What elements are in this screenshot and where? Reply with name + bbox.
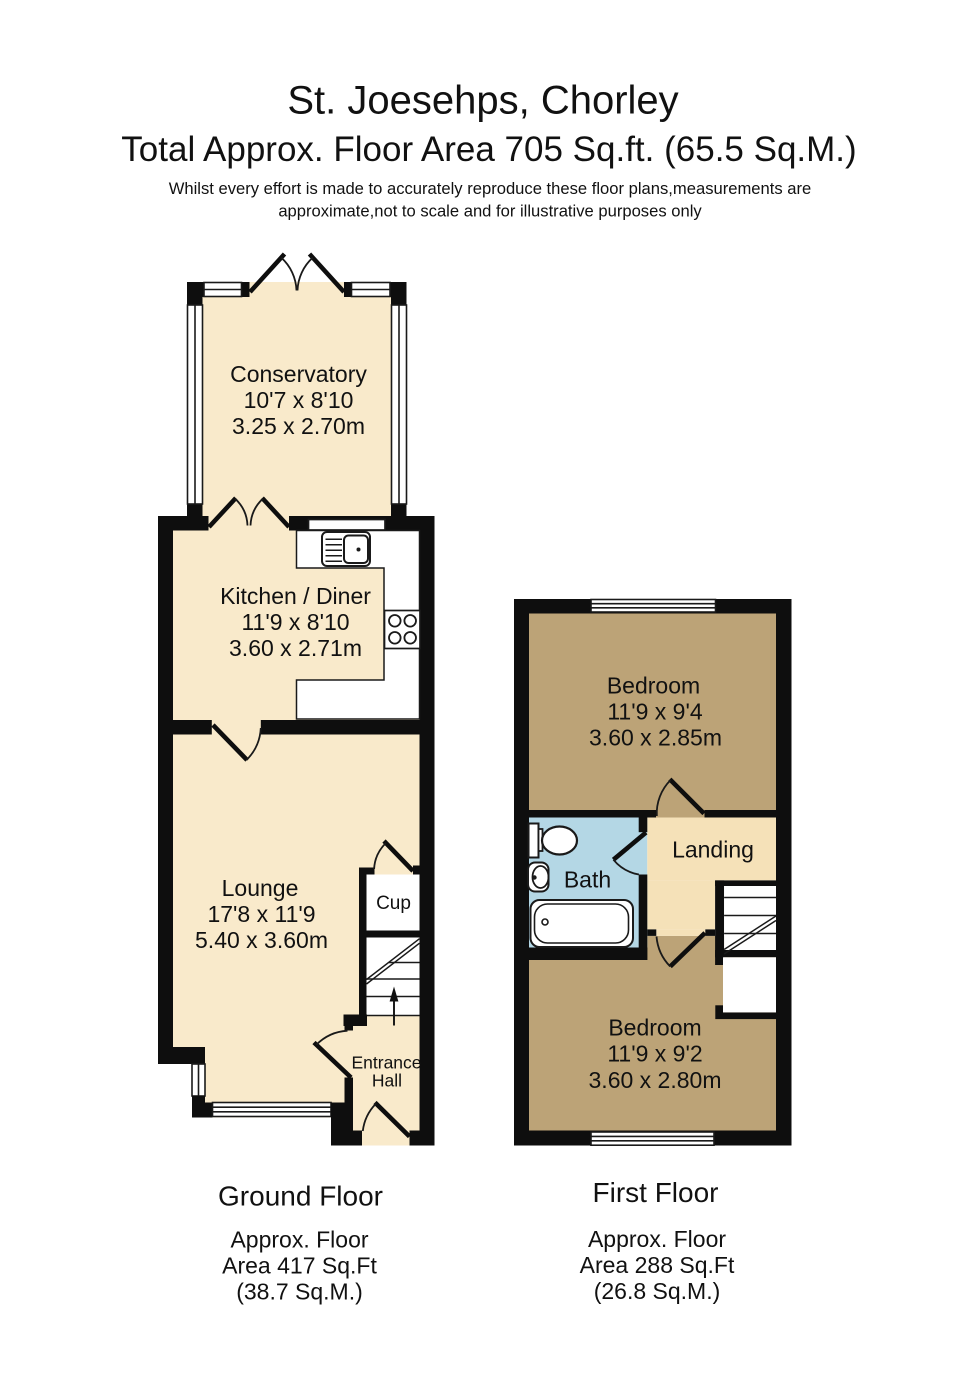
svg-text:5.40 x 3.60m: 5.40 x 3.60m (195, 927, 328, 953)
svg-text:First Floor: First Floor (593, 1177, 719, 1208)
svg-text:17'8 x 11'9: 17'8 x 11'9 (207, 901, 315, 927)
svg-text:Entrance: Entrance (351, 1053, 421, 1073)
svg-text:3.60 x 2.71m: 3.60 x 2.71m (229, 635, 362, 661)
svg-text:Conservatory: Conservatory (230, 361, 367, 387)
svg-text:Cup: Cup (376, 893, 411, 914)
svg-text:Kitchen / Diner: Kitchen / Diner (220, 583, 371, 609)
svg-text:Landing: Landing (672, 837, 754, 863)
svg-text:Approx. Floor: Approx. Floor (588, 1226, 726, 1252)
svg-text:(26.8 Sq.M.): (26.8 Sq.M.) (594, 1278, 721, 1304)
svg-text:11'9 x 8'10: 11'9 x 8'10 (241, 609, 349, 635)
svg-text:10'7 x 8'10: 10'7 x 8'10 (244, 387, 354, 413)
svg-text:3.25 x 2.70m: 3.25 x 2.70m (232, 413, 365, 439)
svg-text:(38.7 Sq.M.): (38.7 Sq.M.) (236, 1278, 363, 1304)
svg-text:approximate,not to scale and f: approximate,not to scale and for illustr… (278, 202, 702, 221)
svg-text:Bedroom: Bedroom (608, 1015, 701, 1041)
svg-text:Ground Floor: Ground Floor (218, 1181, 383, 1212)
svg-text:Bath: Bath (564, 867, 611, 893)
svg-text:3.60 x 2.85m: 3.60 x 2.85m (589, 725, 722, 751)
svg-text:Total Approx. Floor Area 705 S: Total Approx. Floor Area 705 Sq.ft. (65.… (121, 130, 856, 169)
svg-text:11'9 x 9'2: 11'9 x 9'2 (607, 1041, 702, 1067)
svg-text:Area 288 Sq.Ft: Area 288 Sq.Ft (580, 1252, 735, 1278)
svg-text:St. Joesehps, Chorley: St. Joesehps, Chorley (287, 79, 678, 123)
svg-text:Approx. Floor: Approx. Floor (230, 1226, 368, 1252)
svg-text:11'9 x 9'4: 11'9 x 9'4 (607, 699, 703, 725)
svg-text:3.60 x 2.80m: 3.60 x 2.80m (589, 1067, 722, 1093)
svg-text:Whilst every effort is made to: Whilst every effort is made to accuratel… (169, 179, 812, 198)
svg-text:Lounge: Lounge (222, 875, 299, 901)
svg-text:Bedroom: Bedroom (607, 673, 700, 699)
svg-text:Hall: Hall (372, 1071, 402, 1091)
svg-text:Area 417 Sq.Ft: Area 417 Sq.Ft (222, 1252, 377, 1278)
